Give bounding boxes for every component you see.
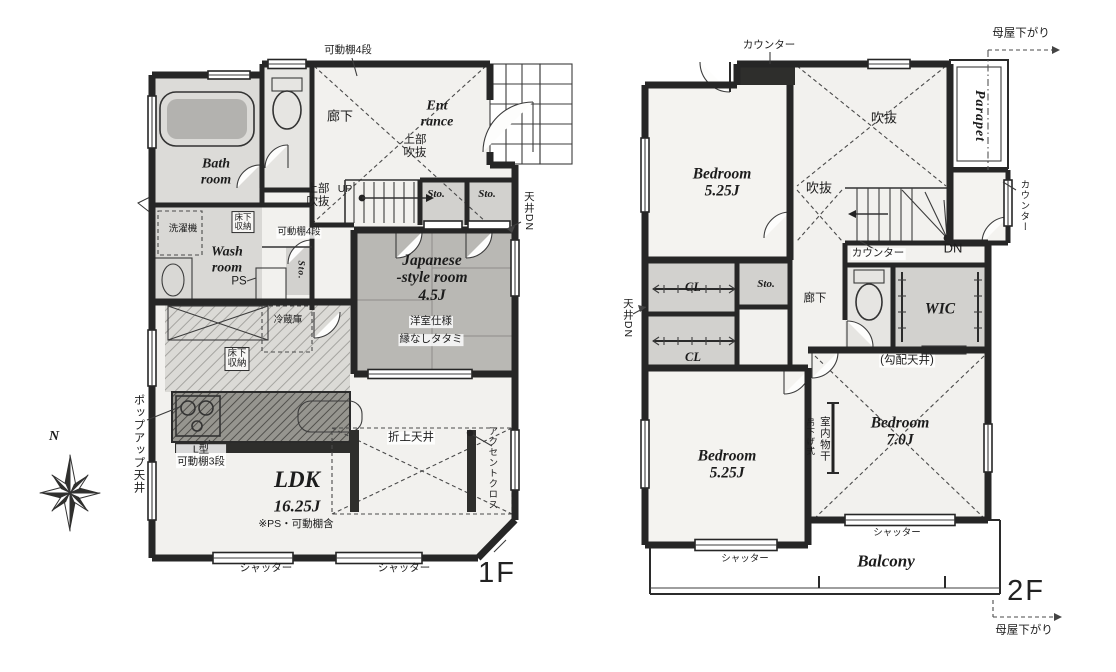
ceiling-down-label-1f: 天井DN bbox=[522, 191, 534, 231]
shutter-label-2f-right: シャッター bbox=[873, 529, 921, 540]
ceiling-down-label-2f: 天井DN bbox=[621, 298, 633, 338]
stairs-up-label: UP bbox=[338, 184, 353, 196]
compass-north-label: N bbox=[49, 429, 59, 445]
void-label-1: 吹抜 bbox=[871, 112, 897, 127]
upper-void-label-1: 上部 吹抜 bbox=[404, 134, 427, 160]
closet1-label: CL bbox=[685, 280, 701, 294]
popup-ceiling-label: ポップアップ天井 bbox=[132, 394, 145, 494]
underfloor-storage-label-1: 床下 収納 bbox=[231, 211, 254, 233]
upper-void-label-2: 上部 吹抜 bbox=[307, 183, 330, 209]
bedroom2-label: Bedroom 5.25J bbox=[698, 448, 757, 483]
void-label-2: 吹抜 bbox=[806, 182, 832, 197]
japanese-room-label: Japanese -style room 4.5J bbox=[396, 252, 467, 304]
coffered-ceiling-label: 折上天井 bbox=[387, 432, 435, 445]
shelf-4tier-label-top: 可動棚4段 bbox=[324, 45, 372, 57]
ps-label: PS bbox=[231, 276, 246, 289]
ldk-label: LDK bbox=[274, 467, 320, 493]
counter-label-top: カウンター bbox=[743, 40, 796, 52]
underfloor-storage-label-2: 床下 収納 bbox=[224, 347, 249, 371]
ldk-size-label: 16.25J bbox=[274, 496, 321, 515]
storage-label-2f: Sto. bbox=[757, 278, 774, 290]
shutter-label-1f-right: シャッター bbox=[378, 563, 431, 575]
accent-cloth-label: アクセントクロス bbox=[486, 426, 497, 510]
floor2-label: 2F bbox=[1007, 575, 1045, 607]
washroom-label: Wash room bbox=[211, 244, 243, 275]
storage-small-label: Sto. bbox=[295, 260, 306, 279]
japanese-room-note-1: 洋室仕様 bbox=[409, 316, 453, 328]
shutter-label-2f-left: シャッター bbox=[721, 555, 769, 566]
wic-label: WIC bbox=[925, 300, 955, 317]
balcony-label: Balcony bbox=[857, 551, 915, 570]
storage2-label: Sto. bbox=[478, 188, 495, 200]
shelf-4tier-label-mid: 可動棚4段 bbox=[276, 228, 321, 239]
roof-lowering-label-top: 母屋下がり bbox=[992, 28, 1050, 41]
ldk-note-label: ※PS・可動棚含 bbox=[258, 519, 333, 531]
l-shelf-label: L型 可動棚3段 bbox=[176, 444, 226, 468]
storage1-label: Sto. bbox=[427, 188, 444, 200]
fridge-label: 冷蔵庫 bbox=[274, 316, 303, 327]
closet2-label: CL bbox=[685, 350, 701, 364]
roof-lowering-label-bottom: 母屋下がり bbox=[995, 625, 1053, 638]
entrance-label: Ent rance bbox=[421, 98, 454, 129]
corridor-label-2f: 廊下 bbox=[804, 293, 827, 306]
floor-plan-page: 可動棚4段 廊下 Ent rance 上部 吹抜 上部 吹抜 UP Bath r… bbox=[0, 0, 1116, 672]
floor1-label: 1F bbox=[478, 557, 516, 589]
counter-label-mid: カウンター bbox=[851, 248, 906, 260]
stairs-dn-label: DN bbox=[944, 242, 963, 257]
bedroom3-label: Bedroom 7.0J bbox=[871, 415, 930, 450]
corridor-label-1f: 廊下 bbox=[327, 110, 353, 125]
parapet-label: Parapet bbox=[971, 90, 987, 142]
compass-icon bbox=[40, 455, 100, 531]
counter-label-right: カウンター bbox=[1018, 180, 1029, 233]
sloped-ceiling-label: (勾配天井) bbox=[879, 355, 935, 368]
floor-plan-geometry bbox=[0, 0, 1116, 672]
indoor-drying-label: 室内物干 bbox=[818, 416, 830, 462]
bathroom-label: Bath room bbox=[201, 156, 231, 187]
bedroom1-label: Bedroom 5.25J bbox=[693, 166, 752, 201]
hanging-type-label: 吊下げ式 bbox=[805, 418, 815, 456]
japanese-room-note-2: 縁なしタタミ bbox=[399, 334, 464, 346]
washer-label: 洗濯機 bbox=[169, 225, 198, 236]
shutter-label-1f-left: シャッター bbox=[240, 563, 293, 575]
